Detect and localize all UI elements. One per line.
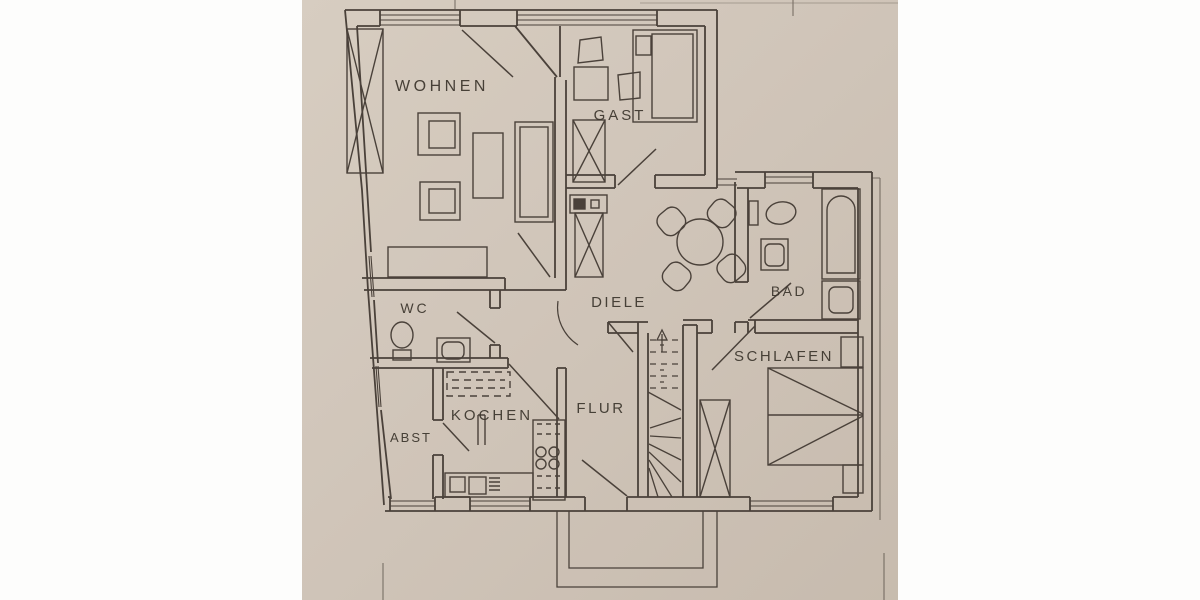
screenshot-stage: WOHNEN GAST WC DIELE BAD KOCHEN FLUR ABS… xyxy=(0,0,1200,600)
floorplan-drawing: WOHNEN GAST WC DIELE BAD KOCHEN FLUR ABS… xyxy=(302,0,898,600)
floorplan-photo: WOHNEN GAST WC DIELE BAD KOCHEN FLUR ABS… xyxy=(302,0,898,600)
photo-vignette xyxy=(302,0,898,600)
